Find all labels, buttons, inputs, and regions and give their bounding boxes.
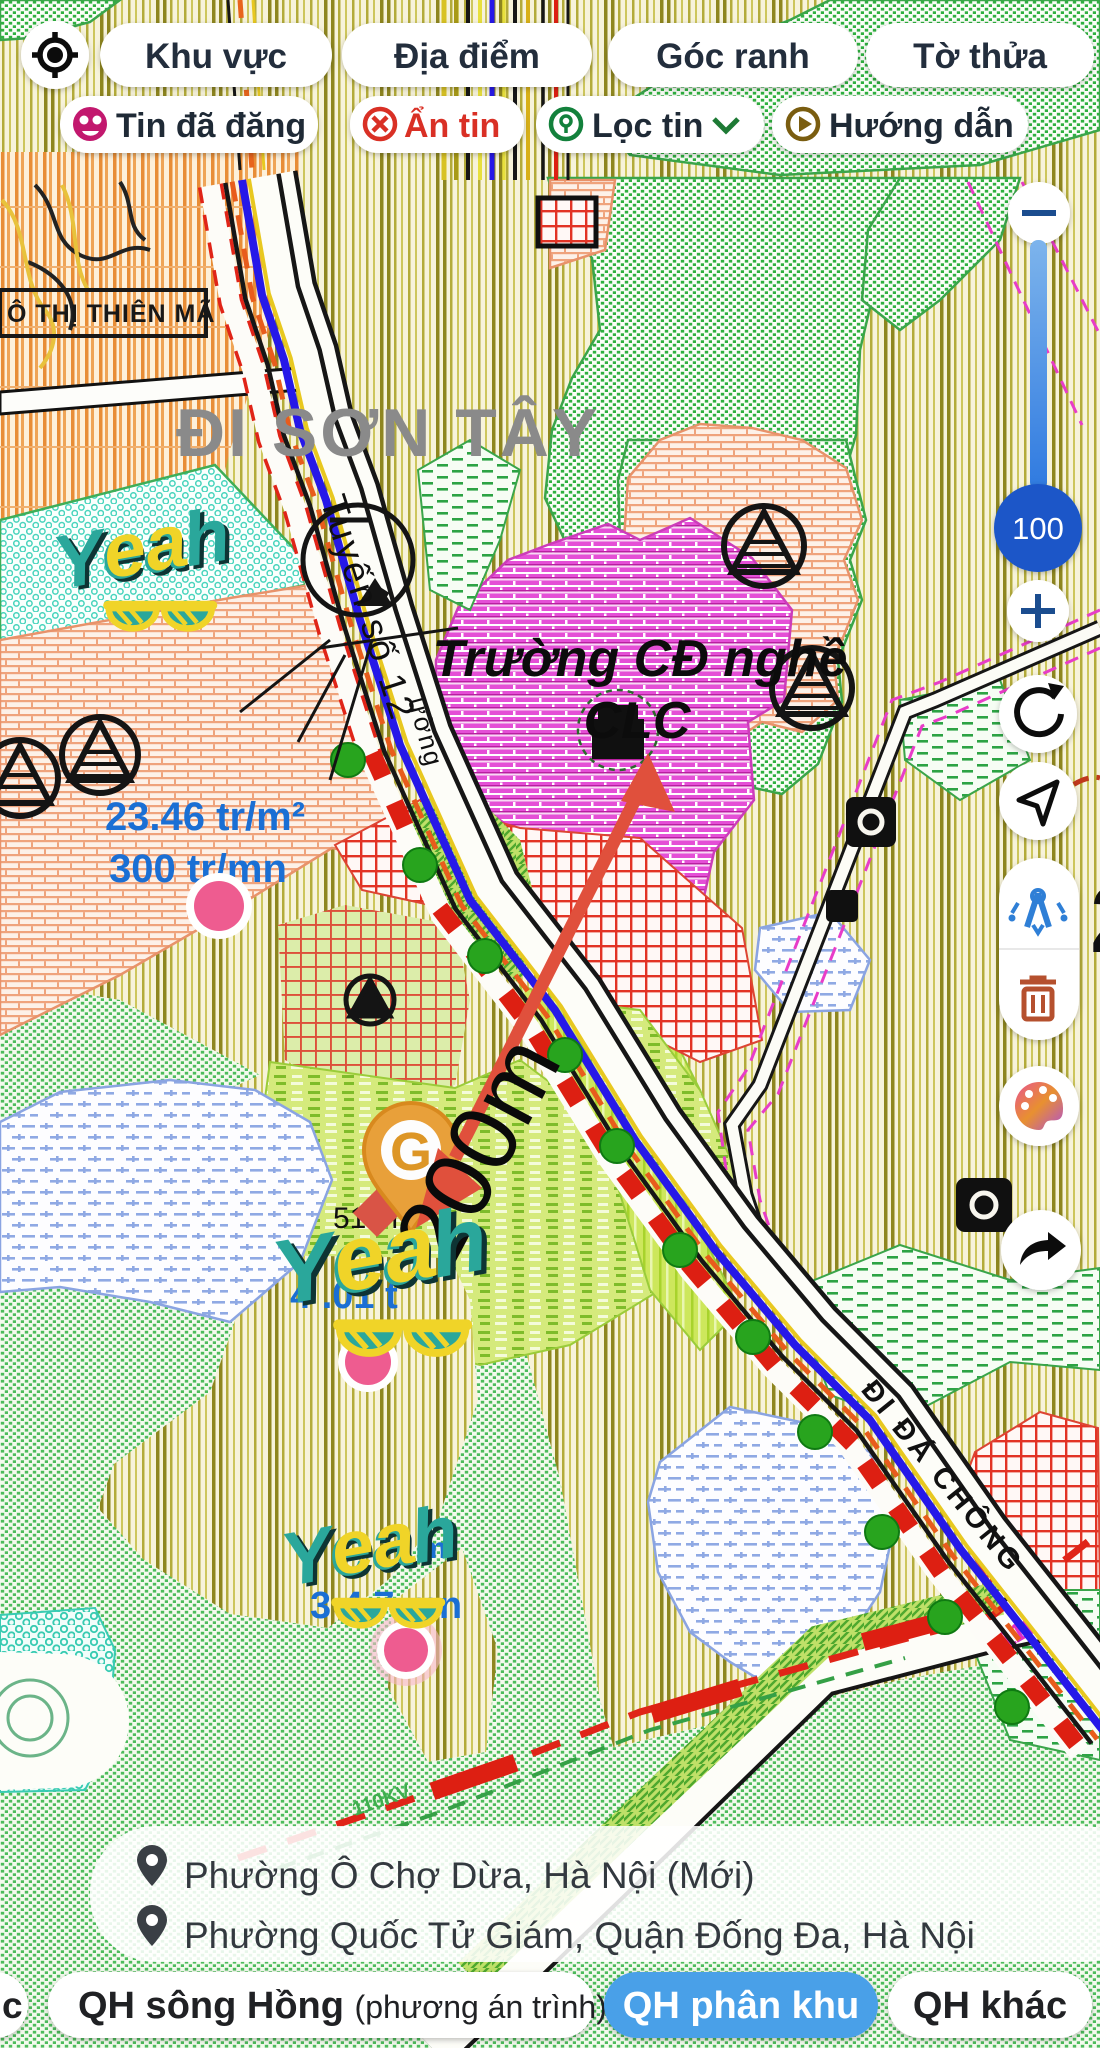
svg-text:Trường CĐ nghề: Trường CĐ nghề: [433, 630, 848, 688]
svg-text:2: 2: [1090, 866, 1100, 973]
svg-text:c: c: [2, 1985, 23, 2026]
svg-text:QH sông Hồng (phương án trình): QH sông Hồng (phương án trình): [78, 1985, 607, 2027]
svg-text:Ô THỊ THIÊN MÃ: Ô THỊ THIÊN MÃ: [7, 298, 215, 328]
svg-text:ĐI SƠN TÂY: ĐI SƠN TÂY: [176, 394, 600, 471]
svg-text:QH khác: QH khác: [913, 1985, 1067, 2027]
svg-text:Ẩn tin: Ẩn tin: [404, 107, 500, 145]
svg-text:Tờ thửa: Tờ thửa: [913, 37, 1047, 76]
svg-text:Tin đã đăng: Tin đã đăng: [116, 107, 306, 145]
svg-text:Góc ranh: Góc ranh: [656, 37, 810, 76]
svg-text:Khu vực: Khu vực: [145, 37, 287, 76]
svg-text:23.46 tr/m²: 23.46 tr/m²: [105, 795, 305, 839]
svg-text:Phường Ô Chợ Dừa, Hà Nội (Mới): Phường Ô Chợ Dừa, Hà Nội (Mới): [184, 1855, 755, 1896]
svg-text:QH phân khu: QH phân khu: [623, 1985, 859, 2027]
svg-text:CLC: CLC: [584, 692, 692, 750]
svg-text:Hướng dẫn: Hướng dẫn: [829, 107, 1014, 145]
svg-text:100: 100: [1012, 511, 1064, 546]
svg-text:Địa điểm: Địa điểm: [394, 37, 540, 76]
svg-text:Phường Quốc Tử Giám, Quận Đống: Phường Quốc Tử Giám, Quận Đống Đa, Hà Nộ…: [184, 1915, 975, 1956]
svg-text:Lọc tin: Lọc tin: [592, 107, 703, 145]
